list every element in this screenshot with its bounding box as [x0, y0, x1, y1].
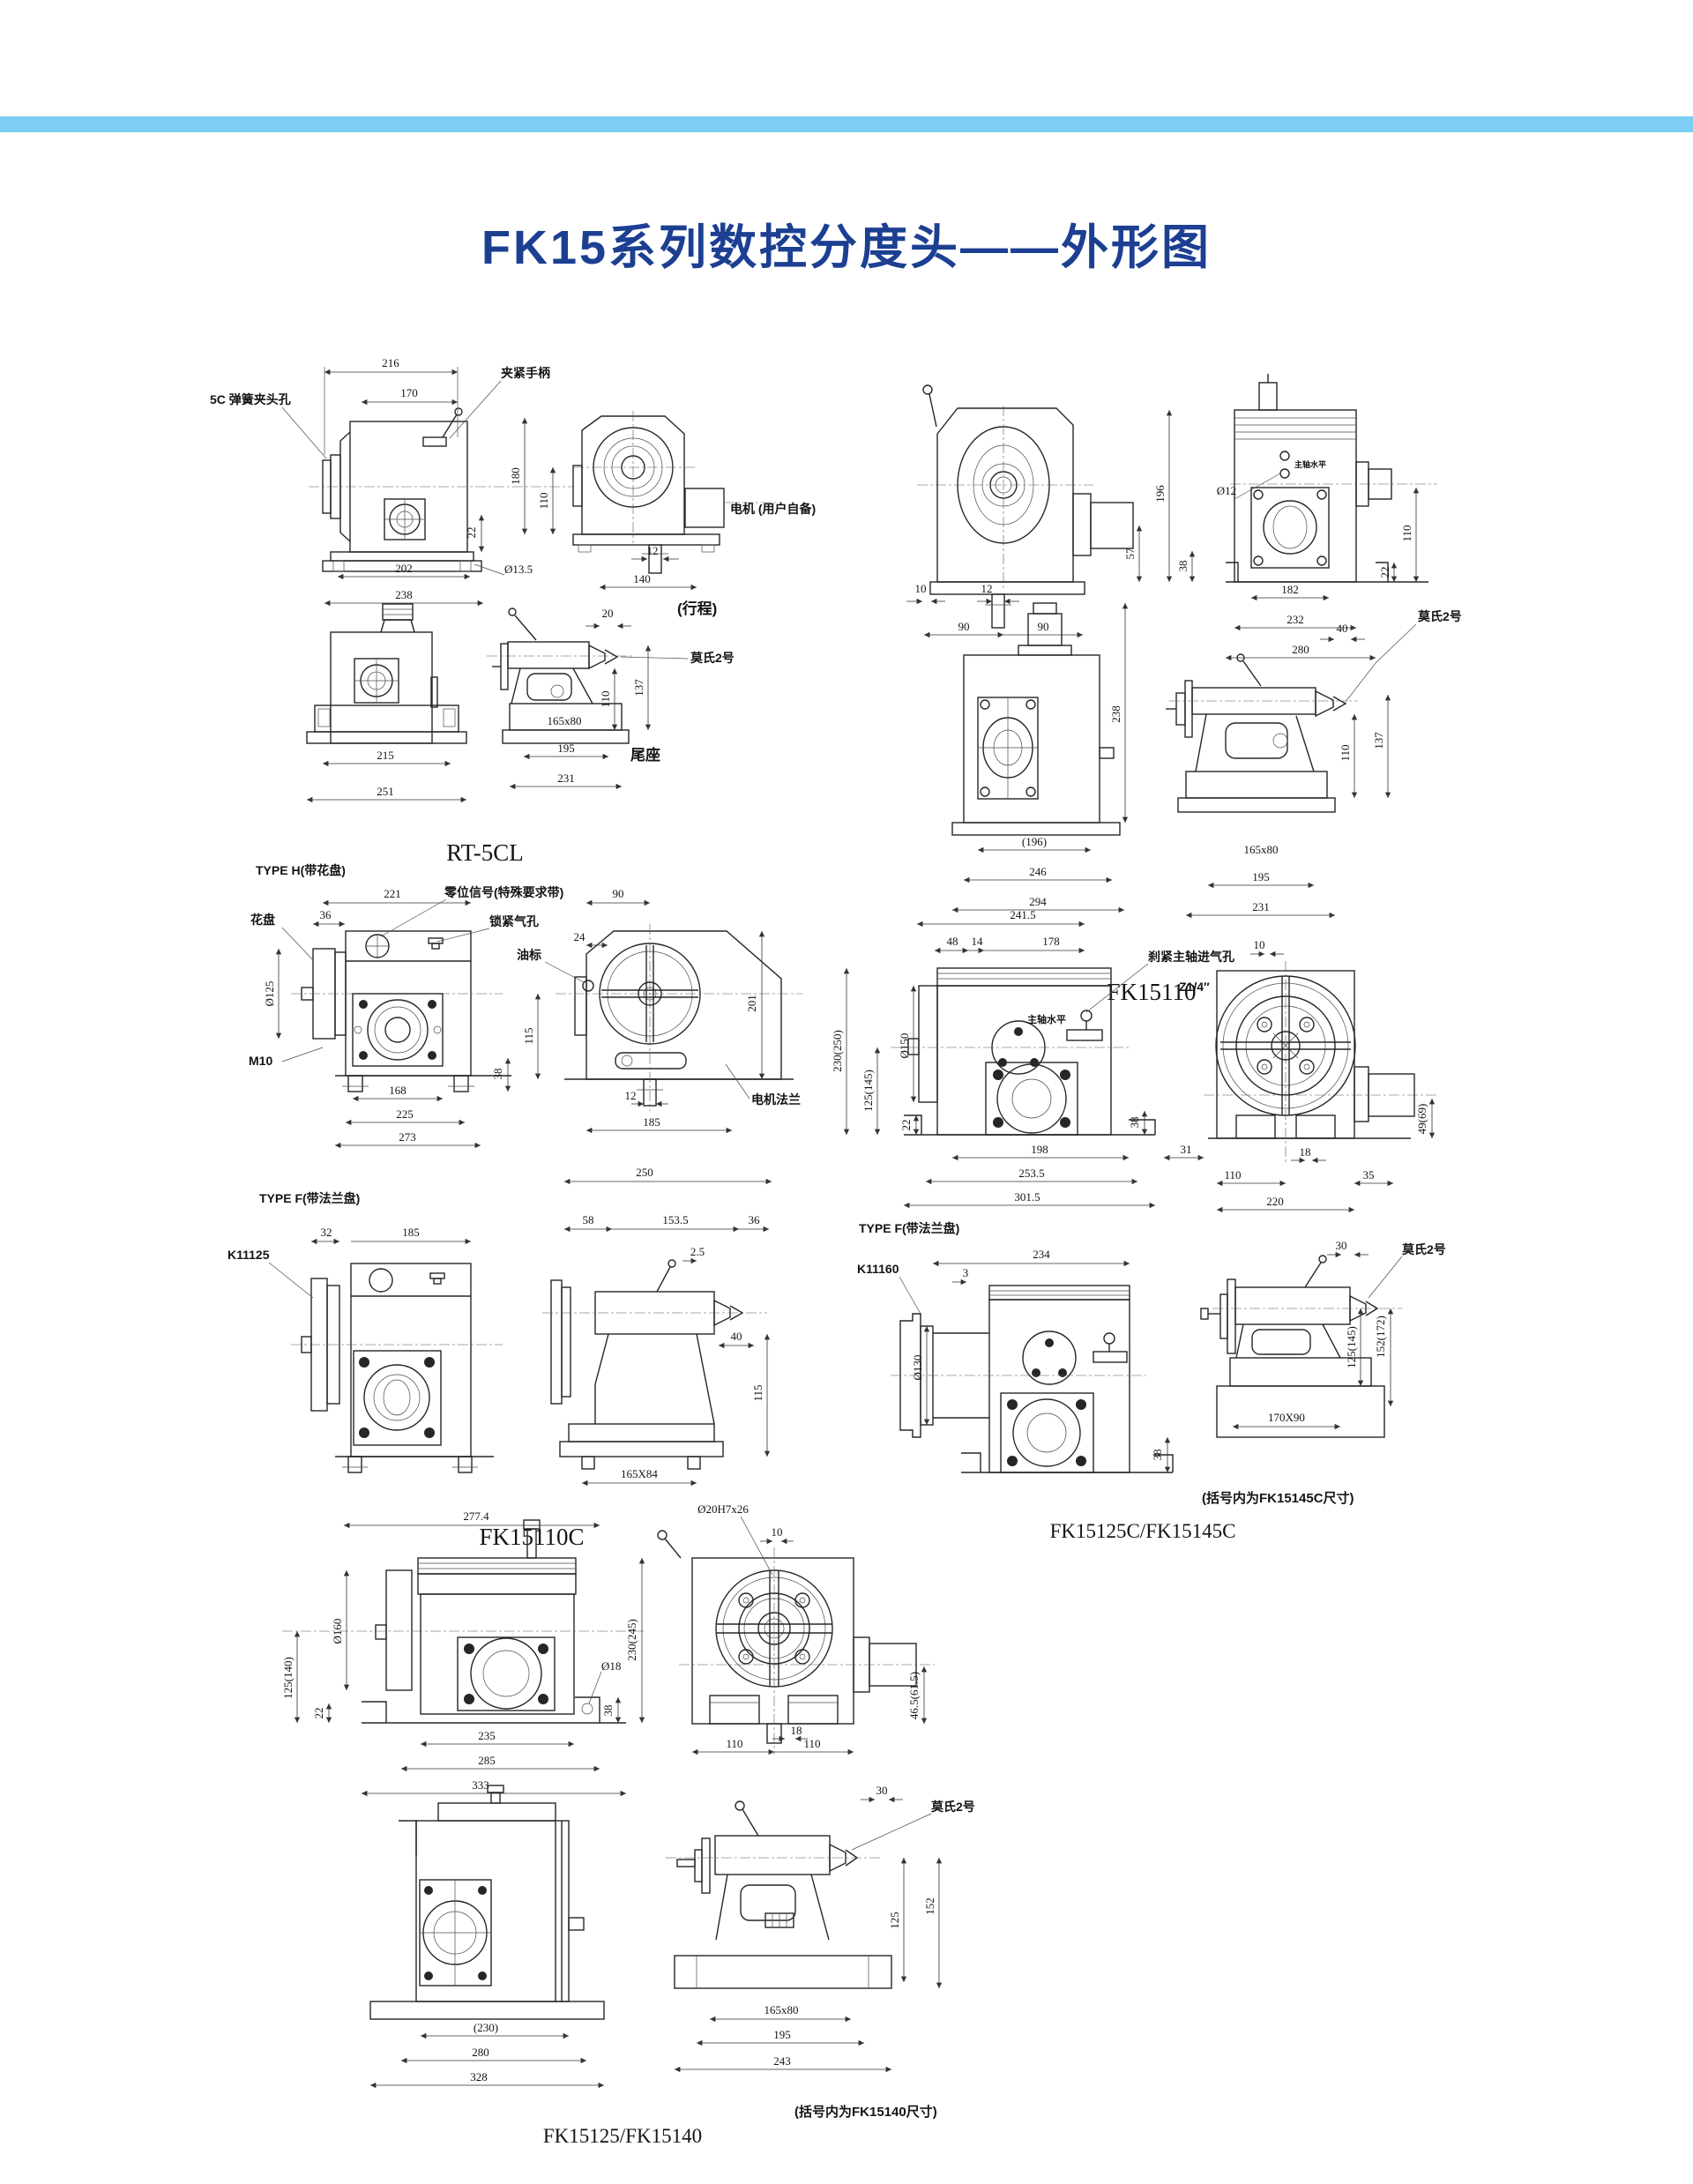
page-title: FK15系列数控分度头——外形图: [0, 208, 1693, 278]
fk15110-side-view: [1226, 374, 1437, 582]
label-collet: 5C 弹簧夹头孔: [210, 392, 291, 406]
fk15125-tailstock-view: [666, 1801, 891, 1988]
dim-35: 35: [1363, 1168, 1375, 1181]
fk15125-front-view: [370, 1785, 604, 2019]
fk15125c-typef-view: [891, 1286, 1173, 1472]
dim-110-tail: 110: [599, 690, 612, 707]
dim-phi150: Ø150: [898, 1033, 911, 1059]
dim-18: 18: [791, 1724, 802, 1737]
dim-231: 231: [557, 771, 575, 785]
fk15125-side-dims: 277.4 Ø160 125(140) 22 Ø18 38 230(245) 2…: [281, 1509, 642, 1793]
fk15125c-face-view: [1204, 961, 1437, 1164]
dim-152: 152: [923, 1897, 936, 1915]
dim-38f: 38: [1151, 1450, 1164, 1461]
dim-46-5: 46.5(61.5): [907, 1672, 921, 1719]
fk15125c-typef-dims: K11160 234 3 Ø130 38: [857, 1248, 1167, 1472]
dim-285: 285: [478, 1754, 496, 1767]
dim-165x80: 165x80: [764, 2003, 799, 2016]
dim-36: 36: [320, 908, 332, 921]
dim-22: 22: [899, 1120, 913, 1131]
dim-253-5: 253.5: [1018, 1167, 1044, 1180]
dim-196: 196: [1153, 485, 1167, 503]
top-blue-band: [0, 116, 1693, 132]
rt5cl-side-dims: 180 110 电机 (用户自备) 12 140 (行程): [509, 418, 816, 617]
dim-301-5: 301.5: [1014, 1190, 1040, 1204]
drawing-fk15125c: 241.5 48 14 178 刹紧主轴进气孔 Z1/4″ 主轴水平 230(2…: [829, 899, 1499, 1552]
label-type-h: TYPE H(带花盘): [256, 863, 346, 877]
dim-110-side: 110: [537, 492, 550, 509]
dim-277-4: 277.4: [463, 1509, 489, 1523]
dim-22: 22: [465, 527, 478, 539]
dim-31: 31: [1181, 1143, 1192, 1156]
fk15125-face-view: [658, 1531, 935, 1755]
dim-165x80: 165x80: [548, 714, 582, 727]
dim-36f: 36: [749, 1213, 761, 1226]
fk15110c-typef-dims: K11125 32 185: [227, 1226, 471, 1298]
dim-125: 125: [888, 1912, 901, 1929]
rt5cl-front-view: [309, 408, 573, 571]
fk15110-side-dims: 196 Ø12 38 主轴水平 110 22 182 232 280: [1153, 410, 1416, 658]
label-z14: Z1/4″: [1179, 980, 1210, 994]
dim-198: 198: [1031, 1143, 1048, 1156]
label-type-f: TYPE F(带法兰盘): [859, 1221, 959, 1235]
dim-152-172: 152(172): [1374, 1316, 1387, 1358]
dim-10: 10: [915, 582, 927, 595]
dim-phi12: Ø12: [1217, 484, 1236, 497]
label-m10: M10: [249, 1054, 272, 1068]
dim-30: 30: [876, 1784, 888, 1797]
dim-38: 38: [1128, 1117, 1141, 1129]
label-zero-signal: 零位信号(特殊要求带): [444, 885, 563, 899]
dim-137: 137: [632, 679, 645, 697]
label-travel: (行程): [677, 600, 717, 617]
dim-333: 333: [472, 1778, 489, 1792]
dim-14: 14: [972, 935, 984, 948]
fk15110-front-dims: 57 10 12 90 90: [906, 526, 1139, 635]
dim-90b: 90: [1038, 620, 1049, 633]
dim-20: 20: [602, 607, 614, 620]
dim-12: 12: [625, 1089, 637, 1102]
dim-238: 238: [395, 588, 413, 601]
dim-32: 32: [321, 1226, 332, 1239]
rt5cl-front-dims: 216 170 5C 弹簧夹头孔 夹紧手柄 22 202 Ø13.5 238: [210, 356, 550, 603]
fk15110c-wheel-view: [556, 924, 802, 1111]
dim-90: 90: [613, 887, 624, 900]
fk15125c-tailstock-dims: 30 莫氏2号 125(145) 152(172) 170X90: [1233, 1239, 1446, 1427]
dim-180: 180: [509, 467, 522, 485]
fk15110c-front-view: [291, 931, 511, 1092]
dim-phi125: Ø125: [263, 981, 276, 1007]
label-tailstock: 尾座: [630, 746, 660, 764]
note-fk15145c: (括号内为FK15145C尺寸): [1202, 1490, 1354, 1506]
dim-phi18: Ø18: [601, 1659, 621, 1673]
label-morse: 莫氏2号: [690, 651, 735, 665]
dim-232: 232: [1287, 613, 1304, 626]
fk15110-front-view: [917, 385, 1133, 628]
label-bore: Ø20H7x26: [697, 1502, 749, 1516]
dim-57: 57: [1123, 548, 1137, 560]
dim-243: 243: [773, 2054, 791, 2068]
dim-221: 221: [384, 887, 401, 900]
dim-328: 328: [470, 2070, 488, 2083]
dim-168: 168: [389, 1084, 406, 1097]
dim-195: 195: [557, 742, 575, 755]
fk15125c-side-view: [891, 968, 1155, 1135]
dim-2-5: 2.5: [690, 1245, 705, 1258]
dim-251: 251: [377, 785, 394, 798]
caption-fk15125: FK15125/FK15140: [543, 2125, 702, 2147]
rt5cl-plan-view: [307, 604, 466, 743]
fk15110c-typef-view: [291, 1263, 503, 1472]
dim-234: 234: [1033, 1248, 1050, 1261]
dim-110b: 110: [803, 1737, 820, 1750]
dim-48: 48: [947, 935, 958, 948]
caption-fk15125c: FK15125C/FK15145C: [1050, 1520, 1236, 1542]
label-motor-flange: 电机法兰: [751, 1092, 801, 1107]
dim-110a: 110: [726, 1737, 742, 1750]
rt5cl-plan-dims: 215 251: [307, 749, 466, 800]
dim-165x80: 165x80: [1244, 843, 1279, 856]
drawing-fk15110c: TYPE H(带花盘) 221 36 花盘 零位信号(特殊要求带) 锁紧气孔 油…: [150, 846, 855, 1561]
dim-230-245: 230(245): [625, 1619, 638, 1661]
dim-110: 110: [1400, 525, 1413, 541]
dim-273: 273: [399, 1130, 416, 1144]
dim-196p: (196): [1022, 835, 1047, 848]
fk15125c-side-dims: 241.5 48 14 178 刹紧主轴进气孔 Z1/4″ 主轴水平 230(2…: [831, 908, 1234, 1205]
fk15125-front-dims: (230) 280 328: [370, 2021, 604, 2085]
rt5cl-tailstock-dims: 20 莫氏2号 110 137 165x80 195 231 尾座: [510, 607, 735, 786]
dim-230-250: 230(250): [831, 1030, 844, 1072]
fk15125-tailstock-dims: 125 152 165x80 195 243: [675, 1858, 939, 2069]
dim-30: 30: [1336, 1239, 1347, 1252]
dim-3: 3: [963, 1266, 969, 1279]
label-clamp-handle: 夹紧手柄: [501, 366, 550, 380]
dim-182: 182: [1281, 583, 1299, 596]
dim-110: 110: [1224, 1168, 1241, 1181]
dim-125-145: 125(145): [861, 1070, 875, 1112]
dim-13-5: Ø13.5: [504, 563, 533, 576]
fk15110-rear-view: [952, 603, 1120, 835]
fk15110c-wheel-dims: 90 24 115 201 12 185 电机法兰: [522, 887, 801, 1130]
label-oil: 油标: [517, 948, 541, 962]
dim-216: 216: [382, 356, 399, 369]
dim-165x84: 165X84: [621, 1467, 658, 1480]
label-morse: 莫氏2号: [1417, 609, 1462, 623]
dim-201: 201: [745, 995, 758, 1012]
dim-22: 22: [1378, 567, 1391, 578]
label-type-f: TYPE F(带法兰盘): [259, 1191, 360, 1205]
label-motor: 电机 (用户自备): [730, 502, 816, 516]
dim-22: 22: [312, 1708, 325, 1719]
dim-250: 250: [636, 1166, 653, 1179]
dim-153-5: 153.5: [662, 1213, 688, 1226]
note-fk15140: (括号内为FK15140尺寸): [794, 2104, 937, 2120]
dim-10: 10: [1254, 938, 1265, 951]
dim-18: 18: [1300, 1145, 1311, 1159]
dim-115f: 115: [751, 1384, 764, 1401]
dim-195: 195: [1252, 870, 1270, 883]
dim-38: 38: [601, 1705, 615, 1717]
dim-58: 58: [583, 1213, 594, 1226]
dim-125-145t: 125(145): [1345, 1326, 1358, 1368]
dim-178: 178: [1042, 935, 1060, 948]
dim-185: 185: [643, 1115, 660, 1129]
dim-280: 280: [472, 2046, 489, 2059]
dim-40: 40: [731, 1330, 742, 1343]
dim-90a: 90: [958, 620, 970, 633]
dim-24: 24: [574, 930, 586, 943]
dim-170x90: 170X90: [1268, 1411, 1305, 1424]
dim-246: 246: [1029, 865, 1047, 878]
label-k11160: K11160: [857, 1262, 899, 1276]
label-lock-air: 锁紧气孔: [489, 914, 539, 928]
dim-12: 12: [981, 582, 993, 595]
dim-125-140: 125(140): [281, 1657, 295, 1699]
dim-235: 235: [478, 1729, 496, 1742]
dim-38: 38: [1176, 561, 1190, 572]
dim-230p: (230): [474, 2021, 498, 2034]
dim-202: 202: [395, 562, 413, 575]
dim-40: 40: [1337, 622, 1348, 635]
dim-220: 220: [1266, 1195, 1284, 1208]
dim-phi130: Ø130: [911, 1355, 924, 1381]
rt5cl-side-view: [573, 411, 776, 573]
dim-phi160: Ø160: [331, 1619, 344, 1644]
dim-185f: 185: [402, 1226, 420, 1239]
dim-280: 280: [1292, 643, 1309, 656]
dim-49-69: 49(69): [1415, 1104, 1428, 1135]
fk15110c-front-dims: 221 36 花盘 零位信号(特殊要求带) 锁紧气孔 油标 Ø125 M10 3…: [249, 885, 584, 1145]
label-spindle-level: 主轴水平: [1294, 459, 1326, 469]
dim-195: 195: [773, 2028, 791, 2041]
dim-225: 225: [396, 1107, 414, 1121]
dim-115: 115: [522, 1027, 535, 1044]
dim-140: 140: [633, 572, 651, 585]
label-spindle-level: 主轴水平: [1027, 1013, 1066, 1025]
dim-12: 12: [647, 544, 659, 557]
label-brake-air: 刹紧主轴进气孔: [1148, 950, 1234, 964]
label-morse: 莫氏2号: [1401, 1242, 1446, 1256]
label-faceplate: 花盘: [250, 913, 275, 927]
drawing-rt5cl: 216 170 5C 弹簧夹头孔 夹紧手柄 22 202 Ø13.5 238 1…: [159, 326, 846, 935]
fk15125-face-dims: Ø20H7x26 10 46.5(61.5) 18 110 110 30 莫氏2…: [692, 1502, 975, 1850]
drawing-fk15125: 277.4 Ø160 125(140) 22 Ø18 38 230(245) 2…: [229, 1499, 1023, 2169]
dim-238: 238: [1109, 705, 1122, 723]
dim-170: 170: [400, 386, 418, 399]
dim-137: 137: [1372, 732, 1385, 749]
fk15110-tailstock-dims: 40 莫氏2号 110 137 165x80 195 231: [1186, 609, 1462, 915]
dim-215: 215: [377, 749, 394, 762]
dim-38: 38: [491, 1069, 504, 1080]
fk15110c-typef-center-view: [542, 1260, 767, 1469]
fk15110-tailstock-view: [1166, 654, 1358, 812]
dim-10: 10: [772, 1525, 783, 1539]
label-morse: 莫氏2号: [930, 1800, 975, 1814]
dim-241-5: 241.5: [1010, 908, 1035, 921]
label-k11125: K11125: [227, 1248, 270, 1262]
dim-110t: 110: [1339, 744, 1352, 761]
